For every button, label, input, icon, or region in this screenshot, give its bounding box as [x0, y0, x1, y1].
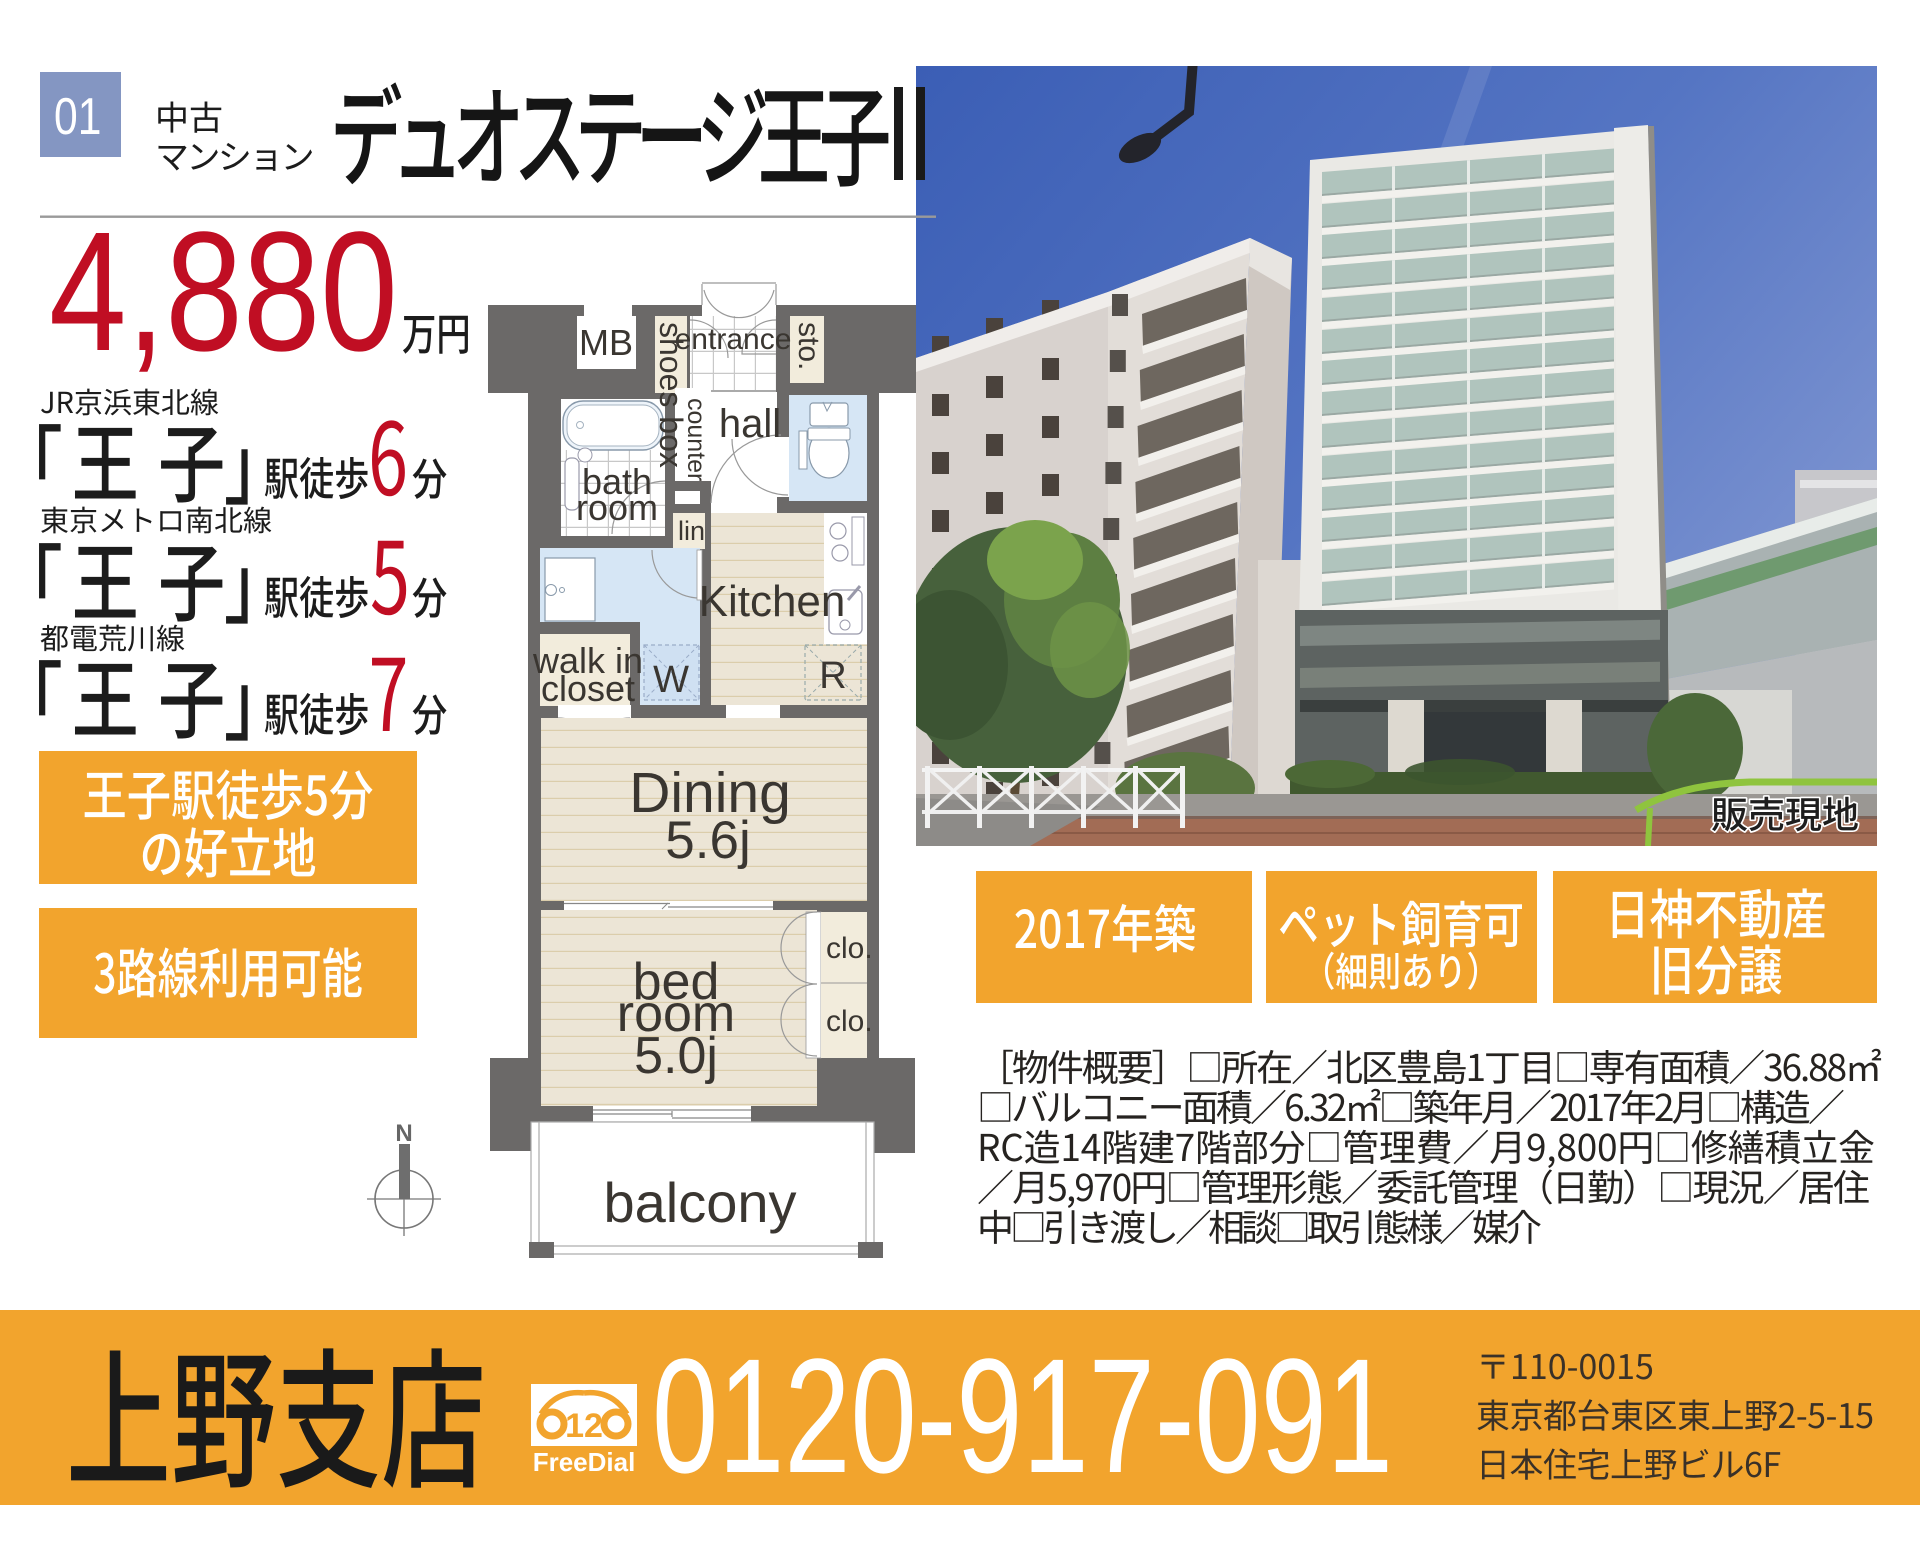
svg-text:clo.: clo. — [826, 1005, 873, 1038]
svg-text:0120-917-091: 0120-917-091 — [652, 1326, 1393, 1508]
svg-text:hall: hall — [719, 402, 781, 446]
svg-text:room: room — [576, 487, 658, 528]
svg-text:clo.: clo. — [826, 932, 873, 965]
svg-text:Kitchen: Kitchen — [699, 577, 846, 626]
svg-text:W: W — [653, 659, 689, 701]
svg-text:12: 12 — [565, 1407, 603, 1445]
svg-text:4,880: 4,880 — [49, 196, 398, 386]
svg-text:01: 01 — [54, 88, 101, 146]
svg-text:lin: lin — [678, 516, 705, 546]
svg-text:5.6j: 5.6j — [665, 811, 750, 870]
svg-text:balcony: balcony — [603, 1171, 796, 1234]
svg-text:counter: counter — [682, 398, 710, 481]
svg-text:5.0j: 5.0j — [634, 1027, 718, 1085]
svg-text:closet: closet — [541, 668, 635, 709]
svg-text:FreeDial: FreeDial — [533, 1447, 636, 1477]
svg-text:N: N — [395, 1120, 412, 1147]
svg-text:MB: MB — [579, 322, 633, 363]
svg-text:entrance: entrance — [675, 323, 792, 356]
svg-text:sto.: sto. — [792, 322, 825, 370]
svg-text:R: R — [819, 655, 846, 697]
